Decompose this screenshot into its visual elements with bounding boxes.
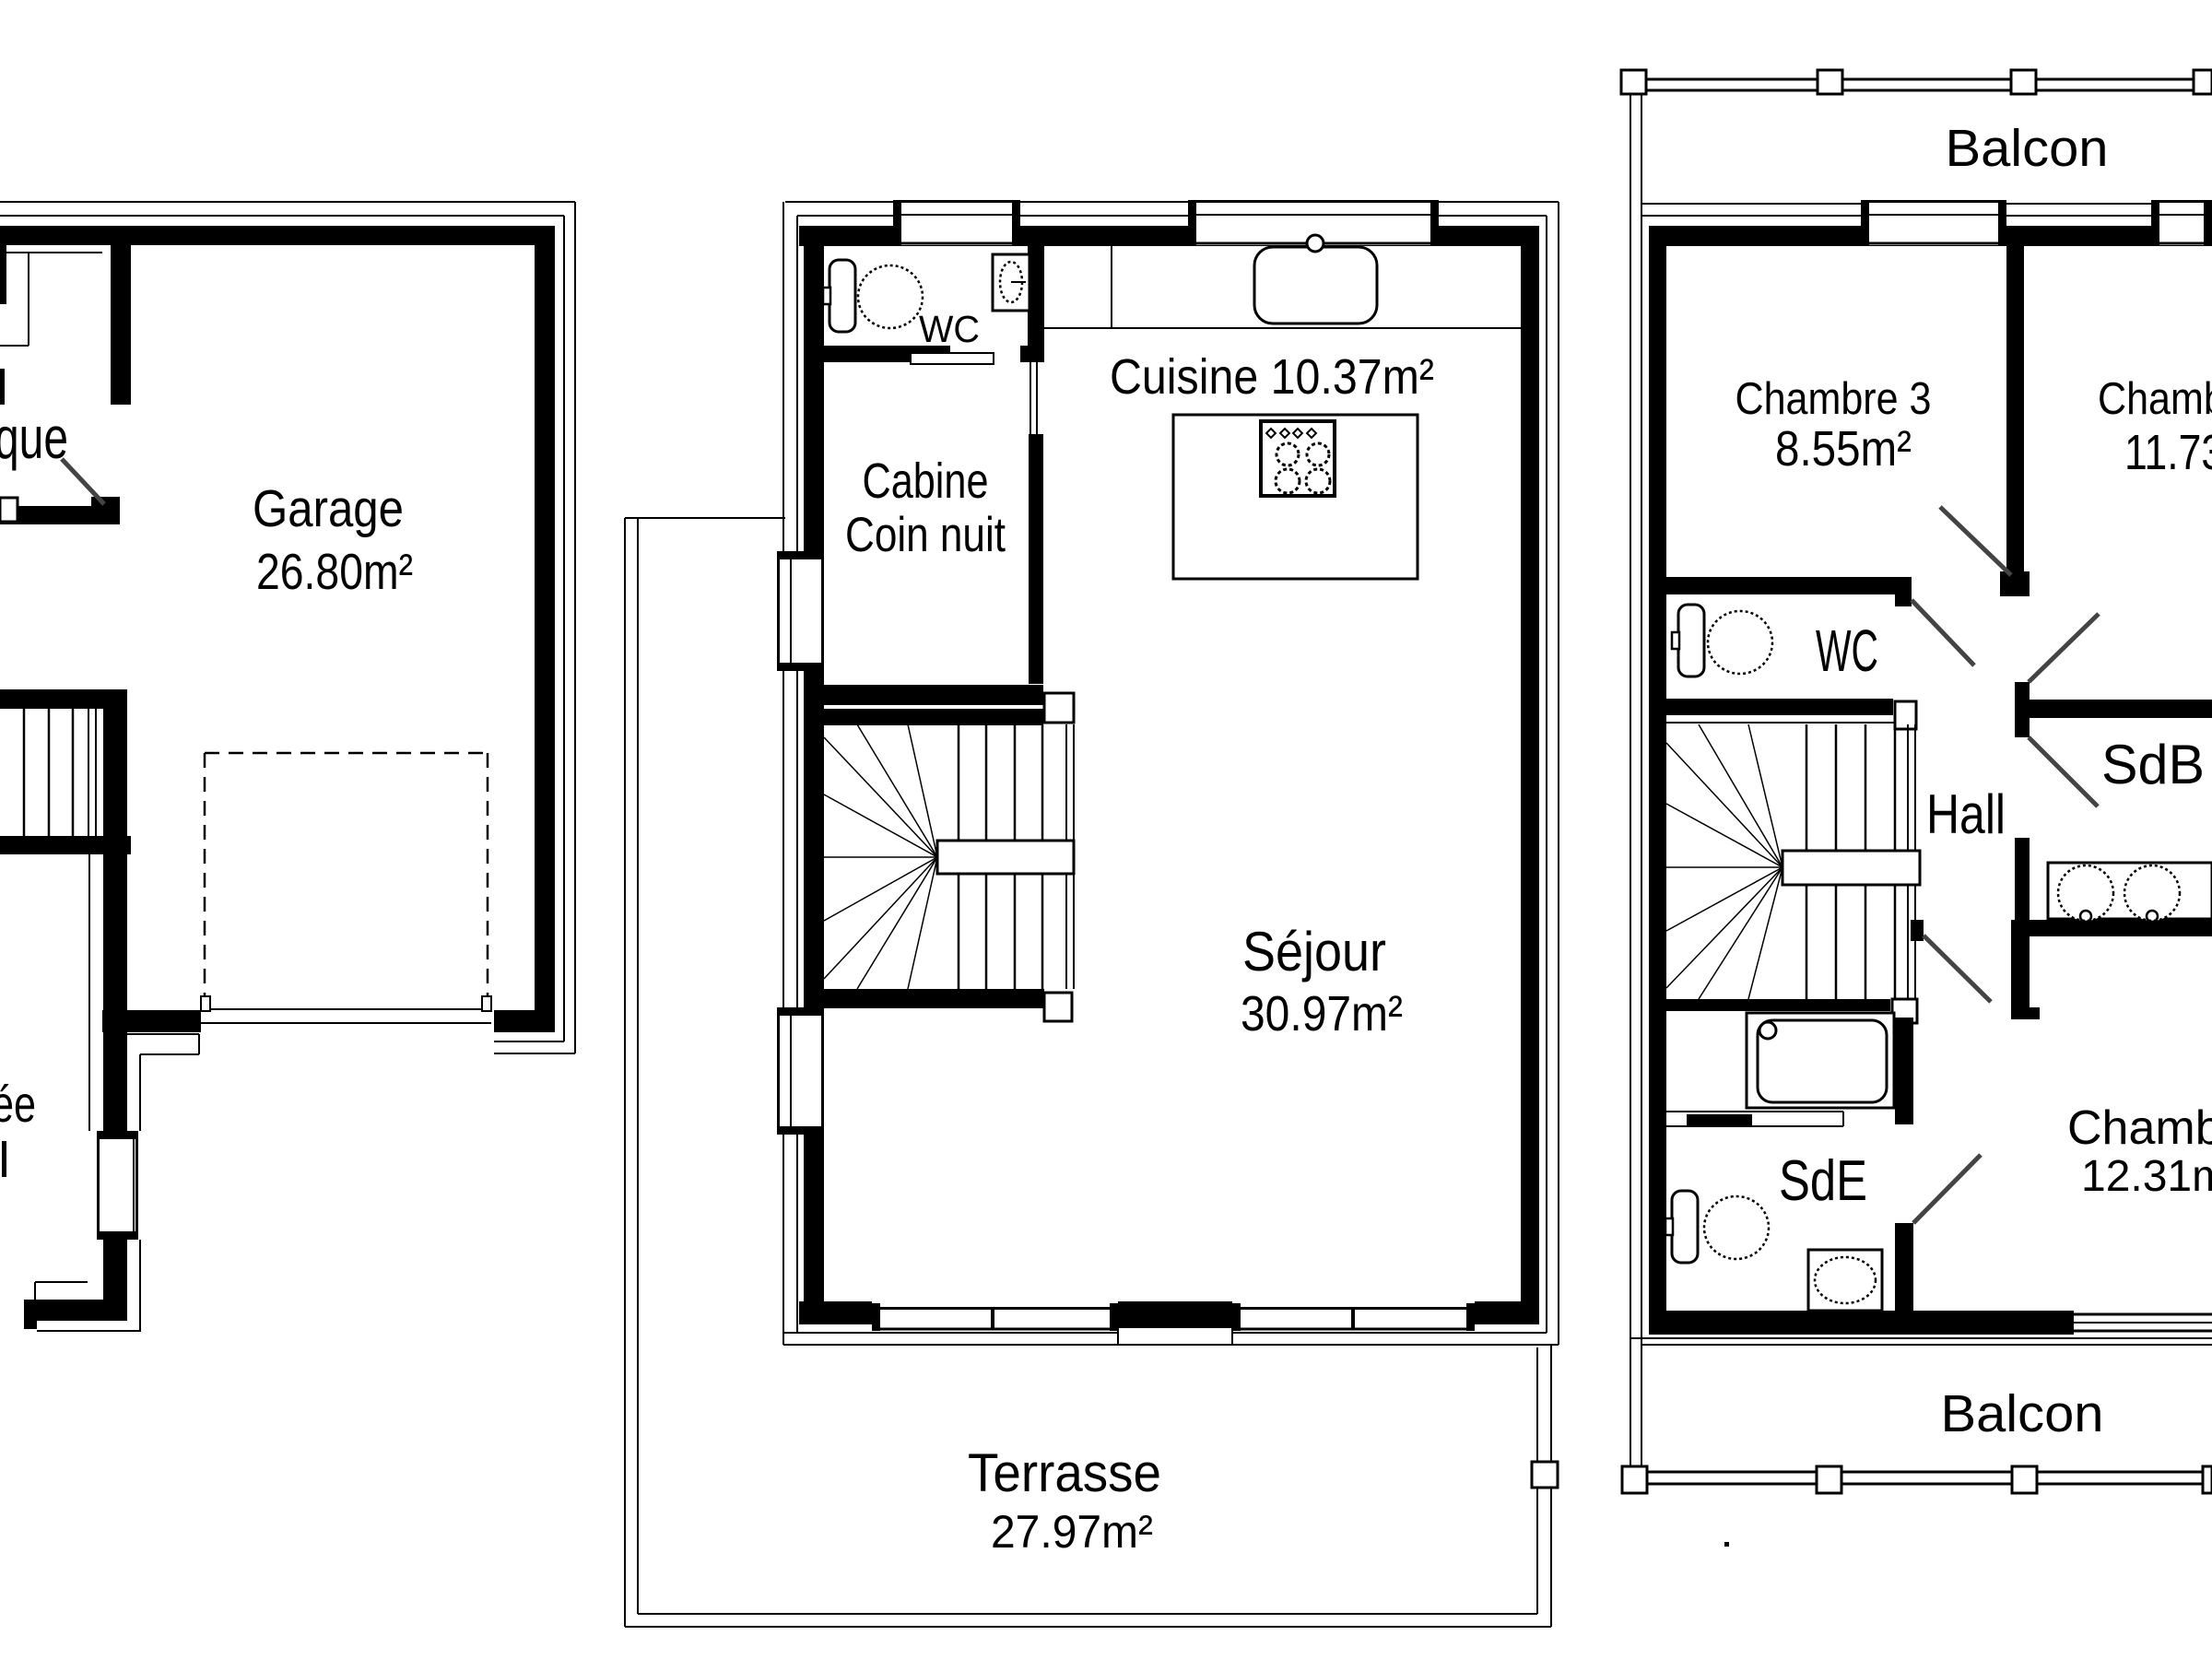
svg-text:12.31m²: 12.31m²: [2081, 1152, 2212, 1201]
svg-text:11.73m²: 11.73m²: [2124, 425, 2212, 480]
svg-text:Balcon: Balcon: [1946, 119, 2109, 178]
svg-text:Chambre 1: Chambre 1: [2067, 1101, 2212, 1155]
svg-text:Séjour: Séjour: [1242, 921, 1386, 982]
svg-text:30.97m²: 30.97m²: [1241, 986, 1403, 1041]
svg-text:26.80m²: 26.80m²: [256, 543, 413, 600]
svg-text:Chambre 2: Chambre 2: [2098, 374, 2212, 424]
svg-text:SdB: SdB: [2101, 734, 2205, 795]
svg-text:Coin nuit: Coin nuit: [845, 508, 1006, 562]
svg-text:SdE: SdE: [1779, 1149, 1867, 1213]
svg-text:8.55m²: 8.55m²: [1775, 421, 1912, 477]
svg-text:WC: WC: [1816, 618, 1878, 684]
svg-text:WC: WC: [919, 308, 980, 350]
svg-text:Cabine: Cabine: [863, 453, 989, 509]
svg-text:Balcon: Balcon: [1941, 1384, 2104, 1443]
svg-text:Garage: Garage: [253, 479, 404, 538]
svg-text:27.97m²: 27.97m²: [991, 1506, 1153, 1558]
svg-text:que: que: [0, 405, 68, 471]
svg-text:Hall: Hall: [1926, 783, 2006, 845]
svg-text:Cuisine 10.37m²: Cuisine 10.37m²: [1110, 349, 1434, 405]
svg-text:Terrasse: Terrasse: [968, 1443, 1161, 1503]
svg-text:Chambre 3: Chambre 3: [1735, 374, 1932, 424]
svg-text:ée: ée: [0, 1075, 36, 1133]
